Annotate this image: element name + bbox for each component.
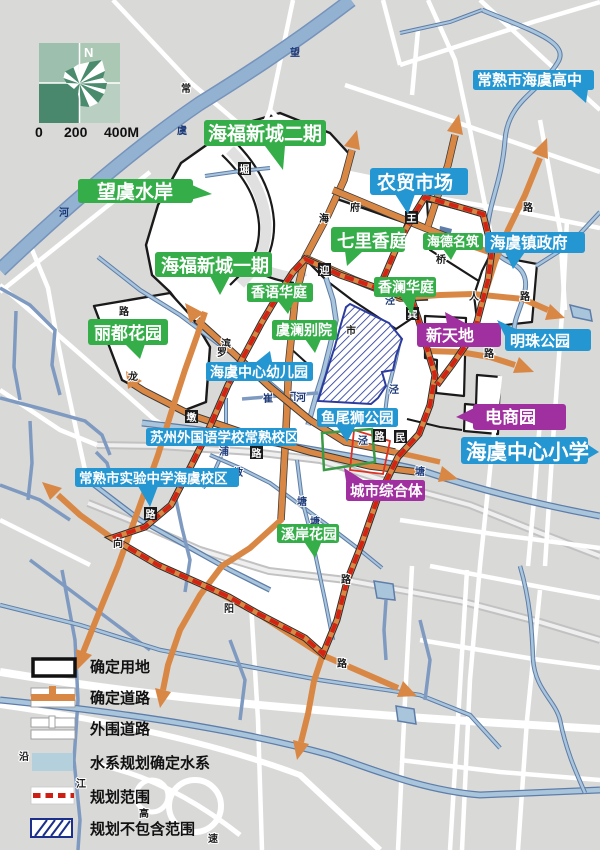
svg-text:江: 江	[76, 777, 86, 790]
svg-text:香语华庭: 香语华庭	[250, 284, 308, 300]
svg-text:海虞中心小学: 海虞中心小学	[466, 440, 589, 464]
svg-text:明珠公园: 明珠公园	[510, 332, 570, 350]
svg-text:外围道路: 外围道路	[89, 720, 151, 738]
svg-text:鱼尾狮公园: 鱼尾狮公园	[321, 409, 394, 427]
svg-text:农贸市场: 农贸市场	[376, 171, 453, 194]
svg-text:河: 河	[59, 207, 69, 219]
svg-text:泾: 泾	[389, 383, 399, 396]
svg-text:市: 市	[346, 324, 356, 337]
svg-text:速: 速	[208, 832, 218, 845]
svg-text:虞: 虞	[177, 124, 188, 137]
svg-text:海福新城二期: 海福新城二期	[208, 122, 322, 145]
svg-text:路: 路	[484, 347, 495, 360]
svg-text:望: 望	[290, 46, 300, 59]
svg-text:城市综合体: 城市综合体	[350, 482, 423, 500]
svg-text:迎: 迎	[320, 264, 330, 277]
svg-text:路: 路	[523, 201, 534, 214]
svg-text:浦: 浦	[219, 445, 229, 458]
svg-text:溪岸花园: 溪岸花园	[281, 526, 337, 542]
svg-text:路: 路	[520, 290, 531, 303]
svg-text:水系规划确定水系: 水系规划确定水系	[90, 754, 210, 772]
svg-text:墩: 墩	[187, 411, 198, 424]
svg-text:塘: 塘	[415, 465, 425, 478]
svg-text:府: 府	[350, 201, 360, 214]
svg-text:海虞镇政府: 海虞镇政府	[490, 233, 568, 252]
svg-text:路: 路	[337, 657, 348, 670]
svg-text:规划范围: 规划范围	[90, 788, 150, 806]
svg-text:沿: 沿	[19, 750, 29, 763]
svg-text:常: 常	[181, 82, 191, 95]
svg-text:王: 王	[407, 213, 417, 225]
svg-text:新天地: 新天地	[426, 326, 474, 345]
svg-text:阳: 阳	[224, 603, 234, 615]
svg-text:路: 路	[375, 430, 386, 443]
svg-text:规划不包含范围: 规划不包含范围	[90, 820, 195, 838]
svg-text:桥: 桥	[436, 253, 447, 266]
svg-text:七里香庭: 七里香庭	[337, 231, 407, 251]
svg-text:确定用地: 确定用地	[90, 658, 150, 676]
svg-text:常熟市实验中学海虞校区: 常熟市实验中学海虞校区	[79, 470, 228, 486]
svg-text:路: 路	[146, 508, 157, 521]
svg-text:海: 海	[319, 212, 329, 225]
svg-text:路: 路	[119, 305, 130, 318]
svg-text:向: 向	[113, 537, 123, 550]
svg-text:海虞中心幼儿园: 海虞中心幼儿园	[210, 364, 308, 380]
svg-text:常熟市海虞高中: 常熟市海虞高中	[477, 71, 582, 89]
svg-text:N: N	[84, 45, 93, 60]
svg-text:海福新城一期: 海福新城一期	[161, 255, 269, 276]
svg-text:路: 路	[341, 573, 352, 586]
svg-text:苏州外国语学校常熟校区: 苏州外国语学校常熟校区	[150, 429, 299, 445]
svg-text:望虞水岸: 望虞水岸	[97, 180, 173, 203]
svg-text:400M: 400M	[104, 124, 139, 140]
svg-text:丽都花园: 丽都花园	[94, 323, 162, 343]
svg-text:0: 0	[35, 124, 43, 140]
svg-text:确定道路: 确定道路	[90, 689, 151, 707]
svg-text:虞澜别院: 虞澜别院	[276, 322, 332, 338]
svg-text:泾: 泾	[358, 434, 368, 447]
svg-text:路: 路	[252, 447, 263, 460]
svg-text:罗: 罗	[217, 347, 227, 359]
svg-text:龙: 龙	[127, 370, 138, 383]
svg-text:海德名筑: 海德名筑	[427, 234, 479, 249]
svg-text:高: 高	[139, 807, 149, 820]
svg-text:崔: 崔	[262, 392, 273, 405]
svg-text:200: 200	[64, 124, 88, 140]
svg-text:民: 民	[396, 432, 406, 444]
svg-text:人: 人	[469, 290, 480, 303]
svg-text:河: 河	[296, 392, 306, 404]
svg-text:堀: 堀	[240, 163, 250, 176]
svg-text:塘: 塘	[297, 495, 307, 508]
svg-text:香澜华庭: 香澜华庭	[377, 279, 435, 295]
svg-text:电商园: 电商园	[485, 407, 536, 427]
